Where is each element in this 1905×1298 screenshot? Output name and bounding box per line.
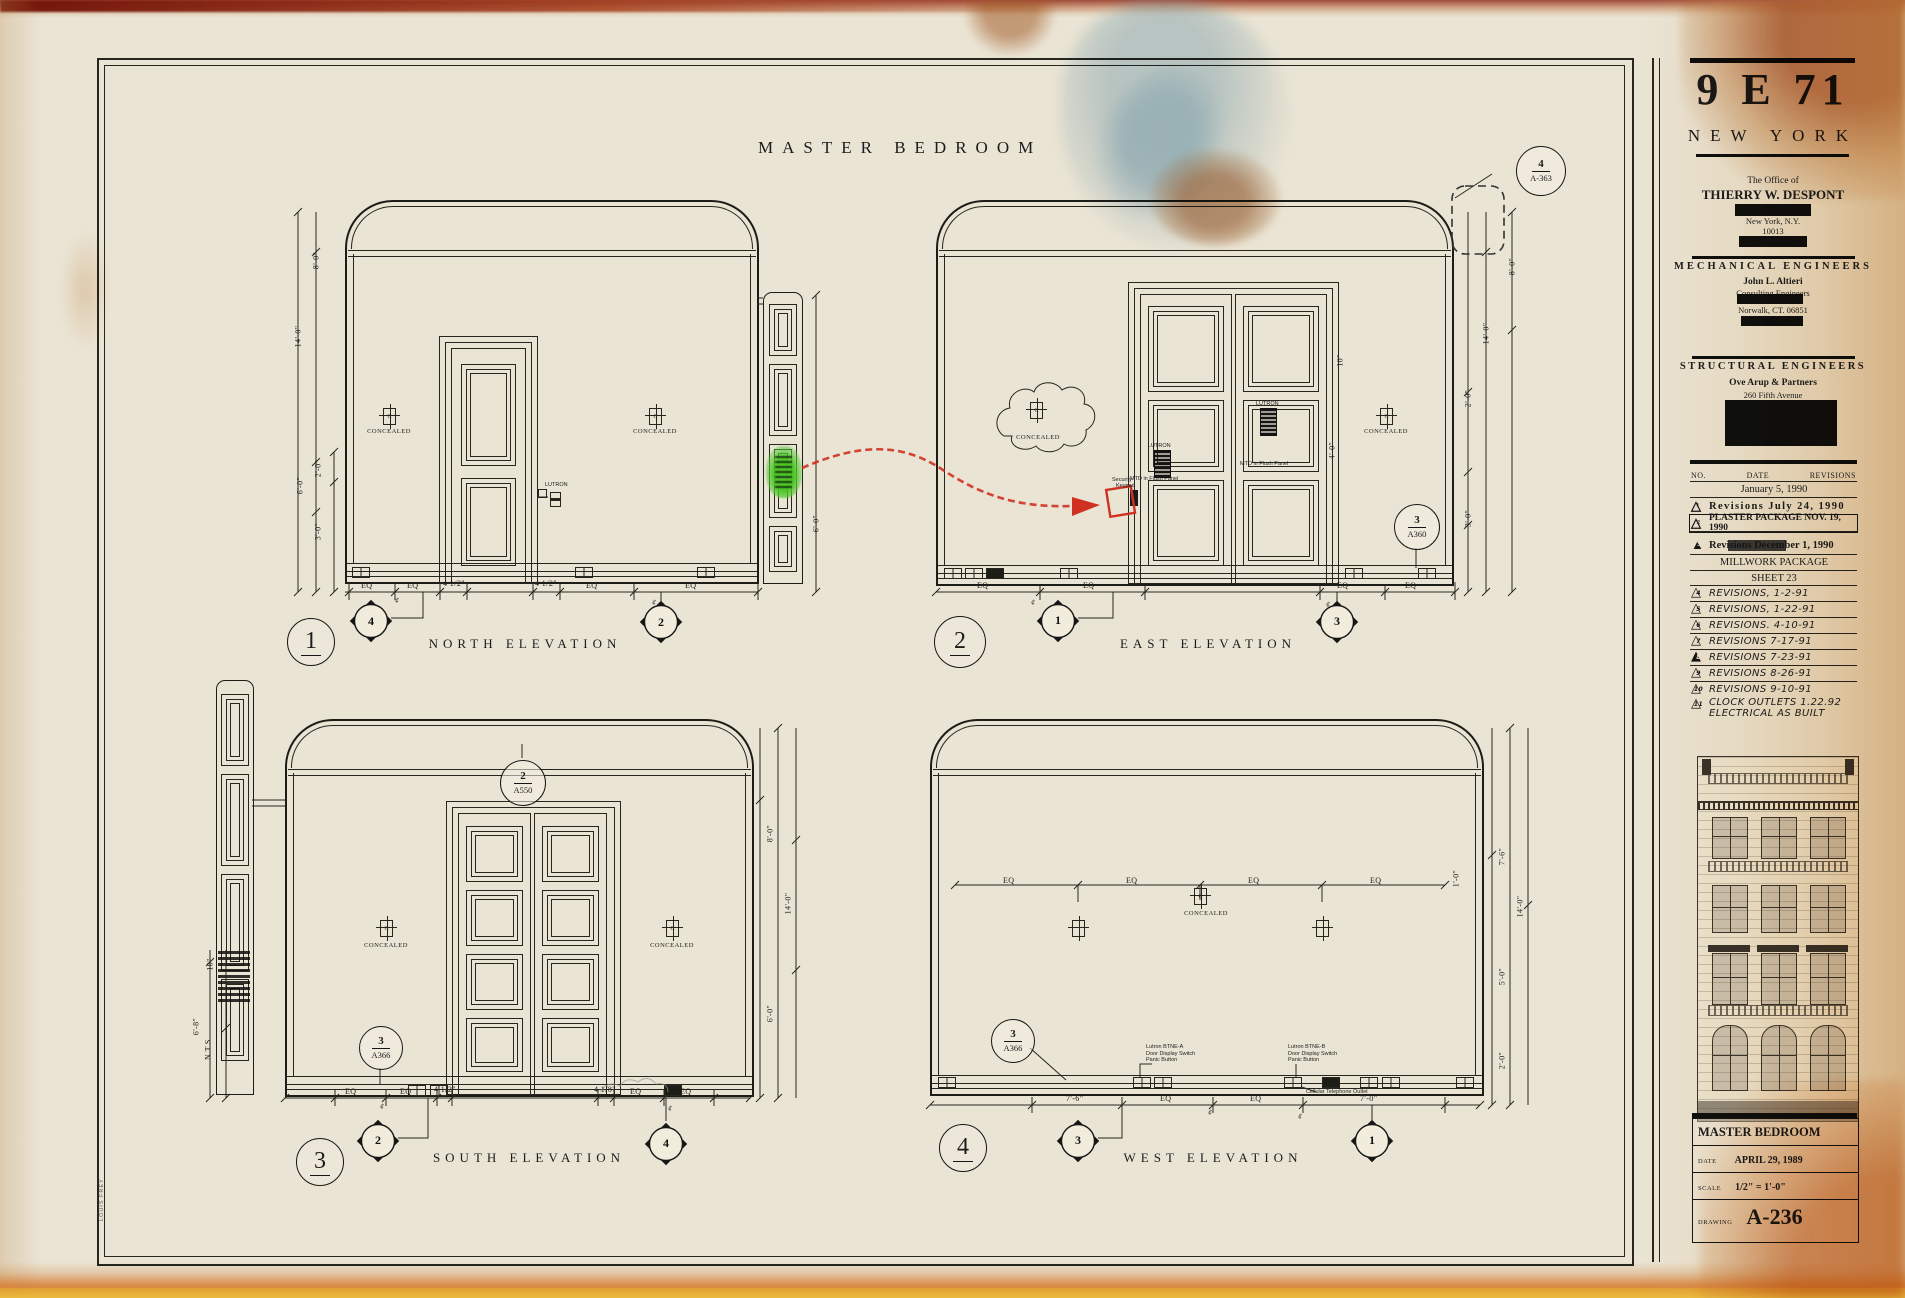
red-highlight-box [1106, 486, 1135, 517]
detail-callout-a366-west: 3 A366 [991, 1019, 1035, 1063]
elevation-number-text: 2 [950, 628, 970, 656]
detail-callout-a363: 4 A-363 [1516, 146, 1566, 196]
callout-number: 3 [1004, 1028, 1022, 1042]
dim-label: EQ [630, 1087, 641, 1096]
dim-label: EQ [1248, 876, 1259, 885]
callout-sheet: A550 [514, 784, 533, 796]
lutron-device-note: Lutron BTNE-B Door Display Switch Panic … [1288, 1044, 1337, 1064]
callout-number: 3 [1408, 514, 1426, 528]
revision-cloud-bubble [997, 383, 1095, 452]
mtd-label: MTD in Flush Panel [1240, 461, 1288, 468]
concealed-label: CONCEALED [625, 428, 685, 435]
centerline-icon: ¢ [395, 596, 399, 605]
callout-sheet: A-363 [1530, 172, 1552, 184]
lutron-label: LUTRON [1256, 401, 1279, 408]
diamond-number: 4 [656, 1136, 676, 1151]
dim-label: EQ [680, 1087, 691, 1096]
diamond-number: 4 [361, 614, 381, 629]
dim-label: 1'-0" [1452, 862, 1461, 896]
dim-label: 8'-0" [1508, 250, 1517, 284]
lutron-label: LUTRON [1148, 443, 1171, 450]
dim-label: EQ [1160, 1094, 1171, 1103]
elevation-number-text: 1 [301, 628, 321, 656]
dim-label: 2'-0" [314, 452, 323, 486]
concealed-label: CONCEALED [1008, 434, 1068, 441]
west-elevation-title: WEST ELEVATION [1103, 1150, 1323, 1166]
dim-label: 14'-0" [1516, 890, 1525, 924]
dim-label: 8'-0" [312, 244, 321, 278]
dim-label: 6'-0" [766, 997, 775, 1031]
dim-label: EQ [1405, 581, 1416, 590]
dim-label: EQ [407, 581, 418, 590]
detail-callout-a360: 3 A360 [1394, 504, 1440, 550]
diamond-number: 3 [1327, 614, 1347, 629]
red-annotation-arrow [802, 449, 1135, 516]
dim-label: 2'-0" [1464, 382, 1473, 416]
dim-label: EQ [1370, 876, 1381, 885]
dim-label: EQ [977, 581, 988, 590]
callout-sheet: A366 [1004, 1042, 1023, 1054]
dim-label: 10" [1336, 344, 1345, 378]
elevation-number-text: 4 [953, 1134, 973, 1162]
dim-label: EQ [1126, 876, 1137, 885]
dim-label: EQ [400, 1087, 411, 1096]
diamond-number: 2 [368, 1133, 388, 1148]
north-elevation-title: NORTH ELEVATION [415, 636, 635, 652]
dim-label: EQ [1337, 581, 1348, 590]
detail-callout-a550: 2 A550 [500, 760, 546, 806]
dim-label: 4 1/2" [535, 579, 557, 588]
dim-label: 10" [206, 948, 215, 982]
east-elevation-title: EAST ELEVATION [1098, 636, 1318, 652]
elevation-number-1: 1 [287, 618, 335, 666]
west-dimension-lines [926, 724, 1532, 1138]
callout-number: 4 [1532, 158, 1550, 172]
dim-label: 5'-0" [1498, 960, 1507, 994]
dim-label: EQ [586, 581, 597, 590]
dim-label: EQ [1003, 876, 1014, 885]
callout-sheet: A366 [372, 1049, 391, 1061]
dim-label: 3'-0" [1464, 502, 1473, 536]
east-dimension-lines [932, 174, 1516, 621]
elevation-number-4: 4 [939, 1124, 987, 1172]
centerline-icon: ¢ [1298, 1112, 1302, 1121]
elevation-number-3: 3 [296, 1138, 344, 1186]
elevation-number-2: 2 [934, 616, 986, 668]
concealed-label: CONCEALED [642, 942, 702, 949]
note-line: Panic Button [1288, 1057, 1337, 1064]
dim-label: 4 1/2" [443, 579, 465, 588]
dim-label: 6'-0" [812, 507, 821, 541]
lutron-label: LUTRON [545, 482, 568, 489]
dim-label: 14'-0" [294, 320, 303, 354]
dim-label: EQ [1083, 581, 1094, 590]
dim-label: 6'-8" [192, 1010, 201, 1044]
dim-label: N.T.S. [204, 1032, 213, 1066]
concealed-label: CONCEALED [359, 428, 419, 435]
dim-label: 7'-6" [1066, 1094, 1083, 1103]
detail-callout-a366: 3 A366 [359, 1026, 403, 1070]
centerline-icon: ¢ [652, 598, 656, 607]
callout-sheet: A360 [1408, 528, 1427, 540]
north-dimension-lines [294, 208, 820, 618]
dim-label: 3'-0" [314, 515, 323, 549]
centerline-icon: ¢ [1326, 600, 1330, 609]
lutron-device-note: Lutron BTNE-A Door Display Switch Panic … [1146, 1044, 1195, 1064]
dim-label: 14'-0" [1482, 317, 1491, 351]
callout-number: 3 [372, 1035, 390, 1049]
concealed-label: CONCEALED [1356, 428, 1416, 435]
centerline-icon: ¢ [668, 1104, 672, 1113]
dim-label: 4 1/2" [434, 1085, 456, 1094]
centerline-icon: ¢ [1031, 598, 1035, 607]
security-label: Keypad [1116, 483, 1135, 490]
diamond-number: 2 [651, 615, 671, 630]
callout-number: 2 [514, 770, 532, 784]
centerline-icon: ¢ [380, 1102, 384, 1111]
dim-label: 7'-6" [1498, 840, 1507, 874]
dim-label: 8'-0" [766, 817, 775, 851]
cellular-outlet-note: Cellular Telephone Outlet [1306, 1089, 1368, 1096]
dim-label: EQ [685, 581, 696, 590]
concealed-label: CONCEALED [356, 942, 416, 949]
dim-label: EQ [1250, 1094, 1261, 1103]
south-elevation-title: SOUTH ELEVATION [419, 1150, 639, 1166]
diamond-number: 1 [1362, 1133, 1382, 1148]
dim-label: 2'-0" [1498, 1044, 1507, 1078]
dim-label: EQ [345, 1087, 356, 1096]
dim-label: 14'-0" [784, 887, 793, 921]
red-arrowhead [1072, 497, 1100, 516]
detail-diamond-markers [350, 600, 1393, 1165]
architectural-drawing-sheet: MASTER BEDROOM C C [0, 0, 1905, 1298]
dim-label: 4 1/8" [594, 1085, 616, 1094]
revision-cloud-corner [1452, 186, 1504, 254]
concealed-label: CONCEALED [1176, 910, 1236, 917]
note-line: Panic Button [1146, 1057, 1195, 1064]
centerline-icon: ¢ [1208, 1108, 1212, 1117]
mtd-label: MTD in Flush Panel [1130, 476, 1178, 483]
diamond-number: 3 [1068, 1133, 1088, 1148]
diamond-number: 1 [1048, 613, 1068, 628]
elevation-number-text: 3 [310, 1148, 330, 1176]
dim-label: EQ [361, 581, 372, 590]
dim-label: 4'-0" [1328, 434, 1337, 468]
dim-label: 6'-0" [296, 469, 305, 503]
sheet-title: MASTER BEDROOM [758, 138, 1038, 158]
